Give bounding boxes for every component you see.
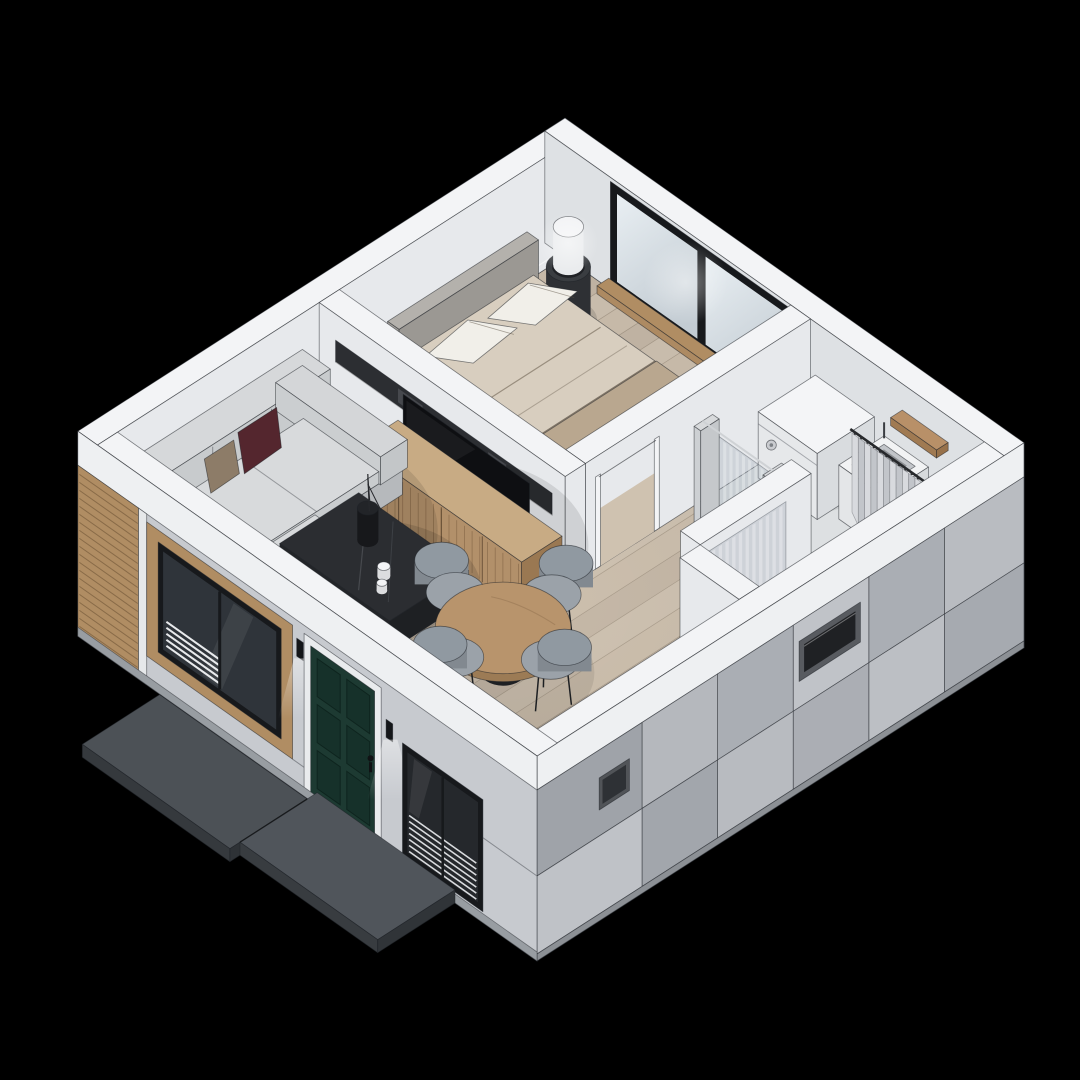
shower-curtain-part [904, 468, 907, 471]
southwest-facade-part [139, 508, 147, 685]
southwest-facade-part [369, 762, 372, 772]
shower-curtain-part [898, 463, 901, 466]
shower-curtain-part [910, 472, 913, 475]
dining-set-part [538, 629, 592, 665]
washer-and-sink-part [770, 443, 774, 447]
bedroom-east-wall-with-door-part [596, 474, 601, 569]
shower-curtain-part [854, 432, 857, 435]
shower-curtain-part [917, 477, 920, 480]
nightstand-and-lamp-part [538, 213, 598, 273]
shower-curtain-part [892, 459, 895, 462]
coffee-table-part [357, 501, 378, 515]
render-stage [0, 0, 1080, 1080]
coffee-table-part [377, 562, 390, 571]
shower-curtain-part [879, 450, 882, 453]
shower-curtain-part [858, 438, 864, 532]
southwest-facade-part [368, 755, 374, 761]
shower-curtain-part [852, 433, 858, 526]
shower-curtain-part [860, 437, 863, 440]
bedroom-window-part [644, 241, 728, 325]
glass-partition-part [694, 426, 701, 531]
shower-curtain-part [866, 441, 869, 444]
shower-curtain-part [885, 454, 888, 457]
shower-curtain-part [873, 445, 876, 448]
coffee-table-part [377, 579, 388, 586]
bedroom-east-wall-with-door-part [654, 436, 659, 531]
isometric-floorplan-render [0, 0, 1080, 1080]
